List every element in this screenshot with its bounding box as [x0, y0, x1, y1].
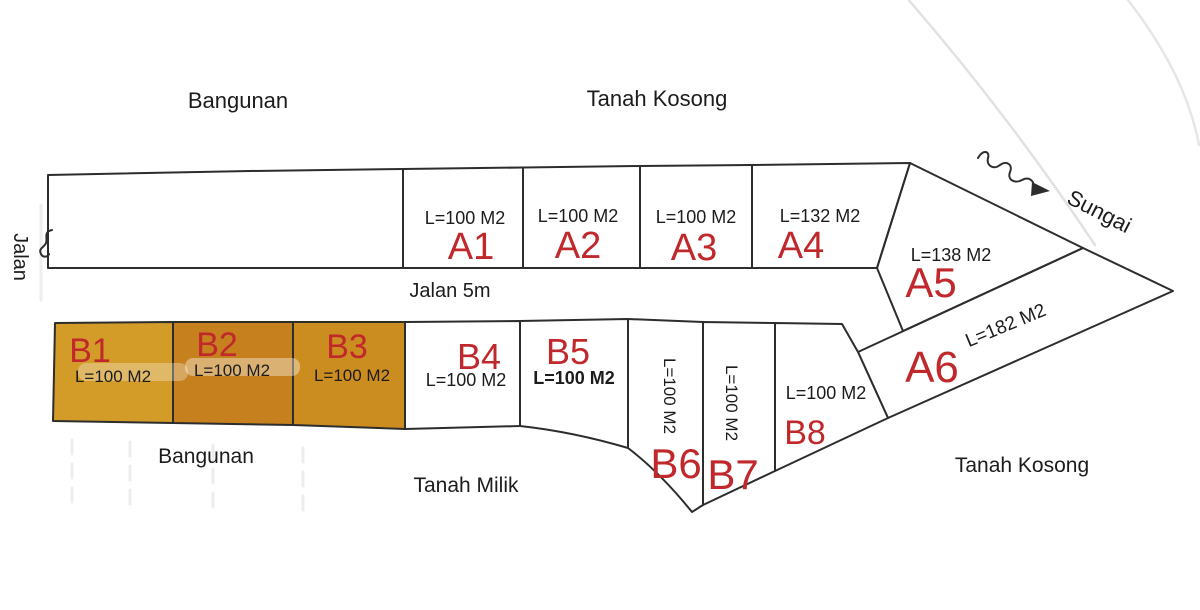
plot-b4-area: L=100 M2 [426, 370, 507, 390]
plot-a1-label: A1 [448, 226, 494, 268]
plot-b5-area: L=100 M2 [533, 368, 615, 388]
label-tanah-kosong-bottom: Tanah Kosong [955, 454, 1089, 477]
plot-a5-label: A5 [905, 259, 956, 306]
site-plan: Bangunan Tanah Kosong Jalan Jalan 5m Sun… [0, 0, 1200, 610]
plot-a6-area: L=182 M2 [963, 300, 1050, 352]
label-tanah-kosong-top: Tanah Kosong [587, 86, 728, 111]
label-bangunan-bottom: Bangunan [158, 445, 254, 468]
plot-a4-area: L=132 M2 [780, 206, 861, 226]
plot-b5-label: B5 [546, 331, 590, 372]
plot-b3-area: L=100 M2 [314, 366, 390, 385]
plot-a6-label: A6 [905, 343, 959, 392]
plot-b6-area: L=100 M2 [660, 358, 679, 434]
plot-b2-label: B2 [196, 326, 238, 364]
label-tanah-milik: Tanah Milik [413, 474, 519, 497]
river-flow-squiggle [978, 152, 1033, 188]
plot-b3-label: B3 [326, 328, 368, 366]
plot-b7-label: B7 [707, 451, 758, 498]
plot-b7-area: L=100 M2 [722, 365, 741, 441]
plot-b8-area: L=100 M2 [786, 383, 867, 403]
plot-a1-area: L=100 M2 [425, 208, 506, 228]
label-jalan-left-road: Jalan [9, 233, 31, 281]
river-flow-arrowhead-icon [1031, 182, 1050, 196]
plot-a2-area: L=100 M2 [538, 206, 619, 226]
plot-b8-label: B8 [784, 414, 826, 452]
scan-artifact-curve [900, 0, 1095, 245]
label-bangunan-top: Bangunan [188, 88, 288, 113]
label-sungai-river: Sungai [1063, 185, 1135, 238]
scan-artifact-curve [1120, 0, 1199, 145]
plot-b2-area: L=100 M2 [194, 361, 270, 380]
plot-b6-label: B6 [650, 440, 701, 487]
plot-b1-label: B1 [69, 332, 111, 370]
label-jalan-5m-road: Jalan 5m [409, 280, 490, 302]
plot-b1-area: L=100 M2 [75, 367, 151, 386]
plot-a2-label: A2 [555, 225, 601, 267]
plot-a3-label: A3 [671, 227, 717, 269]
plot-a3-area: L=100 M2 [656, 207, 737, 227]
plot-a4-label: A4 [778, 225, 824, 267]
site-plan-drawing: Bangunan Tanah Kosong Jalan Jalan 5m Sun… [0, 0, 1200, 610]
